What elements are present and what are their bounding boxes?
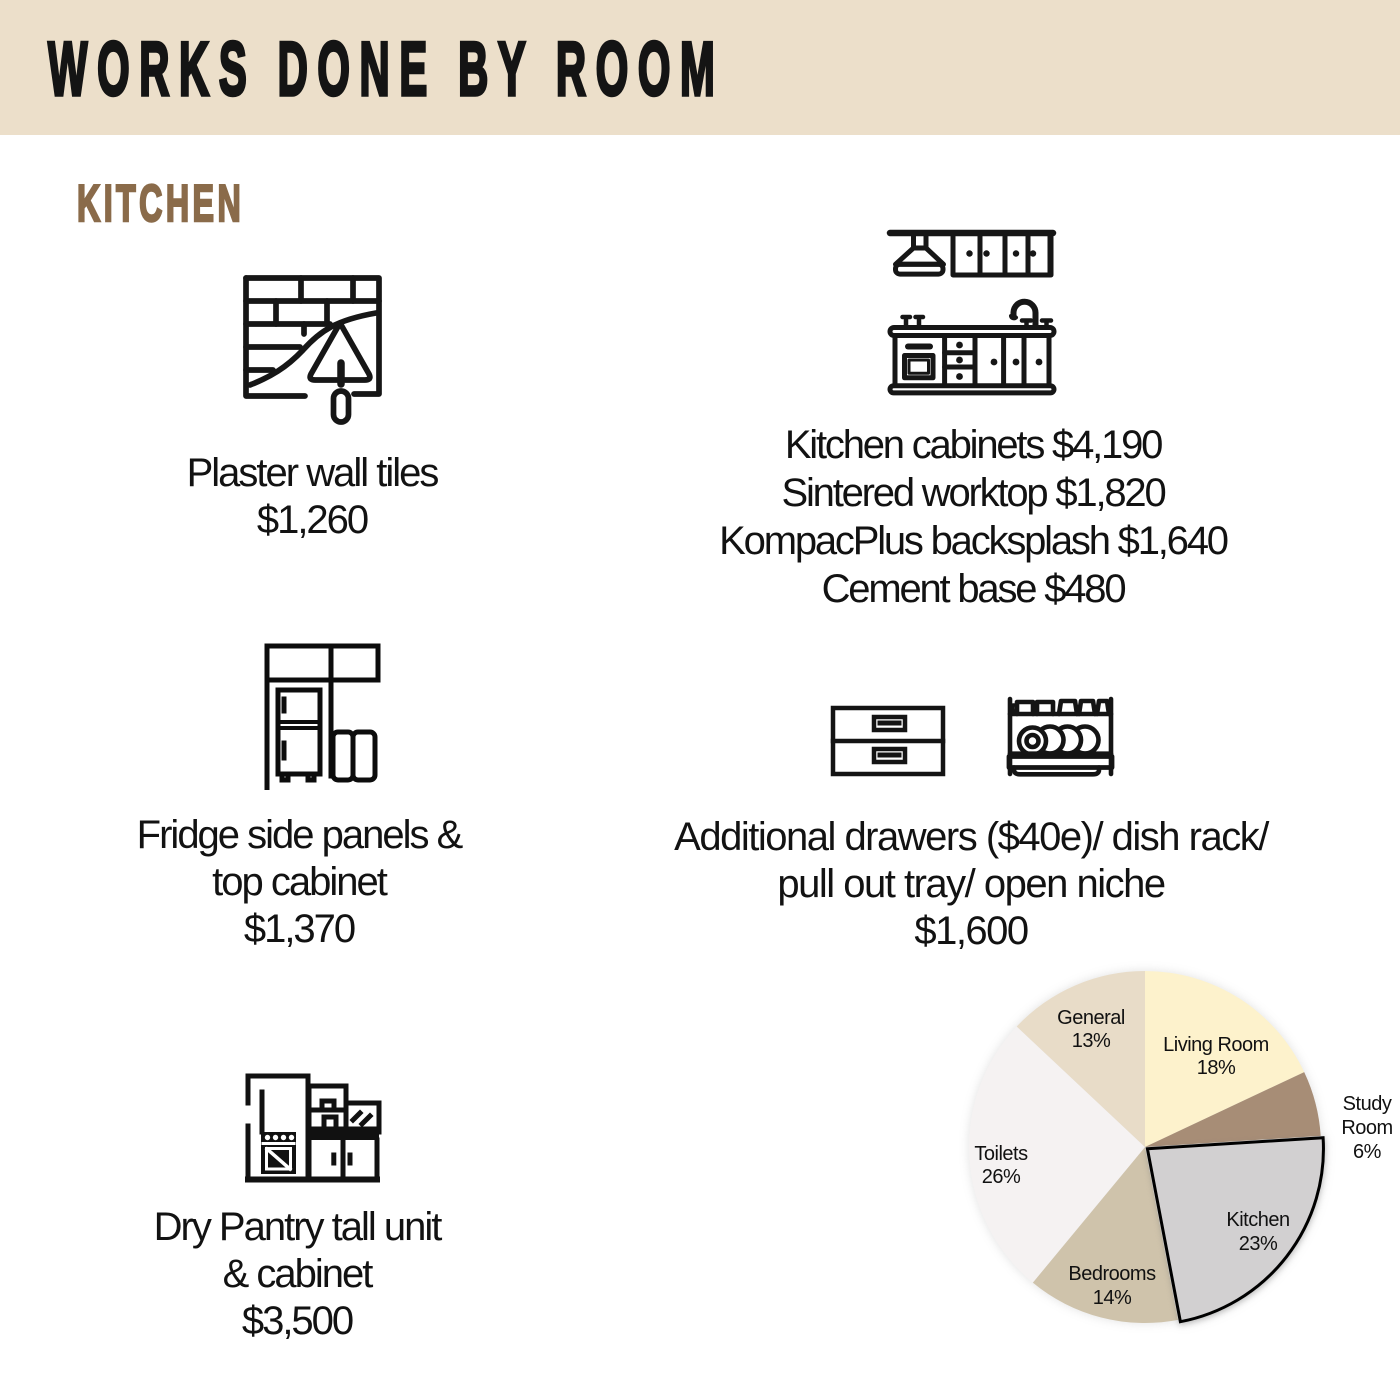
svg-text:Room: Room [1341,1117,1392,1139]
svg-text:23%: 23% [1239,1233,1278,1255]
svg-text:6%: 6% [1353,1141,1382,1163]
svg-text:Toilets: Toilets [974,1143,1028,1165]
svg-text:General: General [1057,1007,1125,1029]
svg-text:26%: 26% [982,1166,1021,1188]
svg-text:Kitchen: Kitchen [1226,1209,1289,1231]
svg-text:Living Room: Living Room [1163,1034,1269,1056]
svg-text:Bedrooms: Bedrooms [1068,1263,1156,1285]
svg-text:14%: 14% [1093,1287,1132,1309]
svg-text:13%: 13% [1072,1030,1111,1052]
svg-text:18%: 18% [1197,1057,1236,1079]
svg-text:Study: Study [1343,1093,1392,1115]
